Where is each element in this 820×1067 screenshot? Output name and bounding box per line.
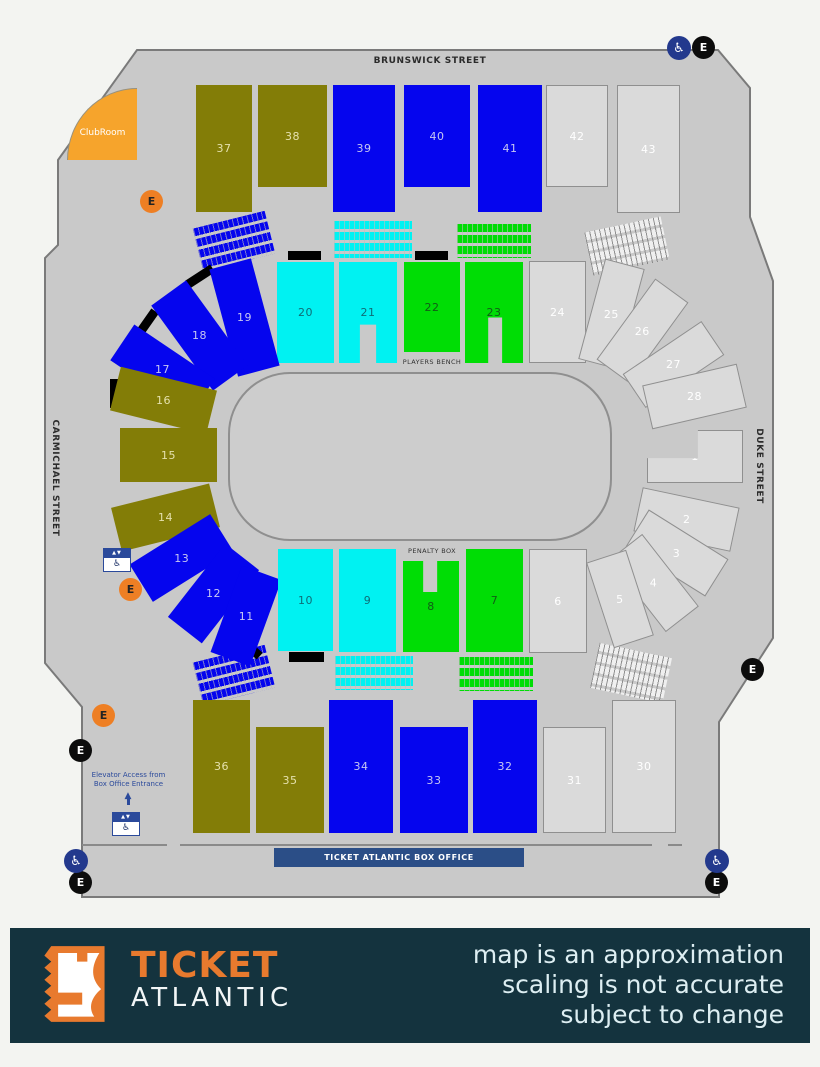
section-label: 9 — [364, 594, 372, 607]
section-label: 10 — [298, 594, 313, 607]
section-label: 13 — [174, 552, 189, 565]
section-label: 22 — [425, 301, 440, 314]
street-label-duke: DUKE STREET — [754, 428, 764, 504]
up-arrow-icon: ▲ — [120, 792, 136, 805]
walkway-line — [180, 844, 652, 846]
street-label-carmichael: CARMICHAEL STREET — [50, 419, 60, 536]
ticket-atlantic-logo-icon — [22, 944, 108, 1024]
section-label: 26 — [635, 325, 650, 338]
walkway-line — [82, 844, 167, 846]
section-label: 15 — [161, 449, 176, 462]
footer-banner: TICKET ATLANTIC map is an approximation … — [10, 928, 810, 1043]
section-label: 42 — [570, 130, 585, 143]
section-label: 27 — [666, 358, 681, 371]
exit-marker: E — [741, 658, 764, 681]
section-37[interactable]: 37 — [196, 85, 252, 212]
elevator-access-note: Elevator Access from Box Office Entrance — [66, 771, 191, 789]
section-label: 11 — [239, 610, 254, 623]
section-label: 3 — [673, 547, 681, 560]
bottom-center-right-rows[interactable] — [459, 657, 533, 691]
walkway-line — [668, 844, 682, 846]
box-office-bar: TICKET ATLANTIC BOX OFFICE — [274, 848, 524, 867]
bottom-center-left-rows[interactable] — [335, 656, 413, 690]
section-label: 12 — [206, 587, 221, 600]
section-9[interactable]: 9 — [339, 549, 396, 652]
section-31[interactable]: 31 — [543, 727, 606, 833]
section-15[interactable]: 15 — [120, 428, 217, 482]
exit-marker: E — [119, 578, 142, 601]
wall-bar — [415, 251, 448, 260]
section-label: 34 — [354, 760, 369, 773]
section-label: 20 — [298, 306, 313, 319]
ice-rink — [228, 372, 612, 541]
section-label: 40 — [430, 130, 445, 143]
wall-bar — [289, 652, 324, 662]
section-label: 28 — [687, 390, 702, 403]
section-label: 37 — [217, 142, 232, 155]
section-39[interactable]: 39 — [333, 85, 395, 212]
section-label: 32 — [498, 760, 513, 773]
section-33[interactable]: 33 — [400, 727, 468, 833]
section-label: 14 — [158, 511, 173, 524]
top-center-left-rows[interactable] — [334, 221, 412, 258]
section-label: 8 — [427, 600, 435, 613]
section-40[interactable]: 40 — [404, 85, 470, 187]
section-label: 41 — [503, 142, 518, 155]
section-label: 16 — [156, 394, 171, 407]
section-7[interactable]: 7 — [466, 549, 523, 652]
penalty-box-label: PENALTY BOX — [377, 547, 487, 555]
section-label: 19 — [237, 311, 252, 324]
top-center-right-rows[interactable] — [457, 224, 531, 258]
clubroom-label: ClubRoom — [80, 128, 126, 138]
section-label: 35 — [283, 774, 298, 787]
exit-marker: E — [692, 36, 715, 59]
section-label: 18 — [192, 329, 207, 342]
section-label: 39 — [357, 142, 372, 155]
section-label: 24 — [550, 306, 565, 319]
section-label: 4 — [650, 577, 658, 590]
section-label: 2 — [683, 513, 691, 526]
players-bench-label: PLAYERS BENCH — [377, 358, 487, 366]
section-label: 25 — [604, 308, 619, 321]
section-label: 6 — [554, 595, 562, 608]
exit-marker: E — [69, 739, 92, 762]
elevator-icon: ▲▼♿ — [112, 812, 140, 836]
wheelchair-access-icon: ♿ — [64, 849, 88, 873]
section-22[interactable]: 22 — [404, 262, 460, 352]
section-30[interactable]: 30 — [612, 700, 676, 833]
brand-name: TICKET ATLANTIC — [131, 948, 293, 1012]
wheelchair-access-icon: ♿ — [667, 36, 691, 60]
section-10[interactable]: 10 — [278, 549, 333, 651]
exit-marker: E — [69, 871, 92, 894]
arena-seating-map: ClubRoom 3738394041424320212223241918171… — [0, 0, 820, 1067]
street-label-brunswick: BRUNSWICK STREET — [330, 56, 530, 66]
section-38[interactable]: 38 — [258, 85, 327, 187]
exit-marker: E — [92, 704, 115, 727]
section-24[interactable]: 24 — [529, 261, 586, 363]
section-label: 17 — [155, 363, 170, 376]
section-label: 23 — [487, 306, 502, 319]
section-label: 43 — [641, 143, 656, 156]
wall-bar — [288, 251, 321, 260]
section-label: 33 — [427, 774, 442, 787]
section-label: 30 — [637, 760, 652, 773]
section-32[interactable]: 32 — [473, 700, 537, 833]
section-35[interactable]: 35 — [256, 727, 324, 833]
section-42[interactable]: 42 — [546, 85, 608, 187]
section-label: 31 — [567, 774, 582, 787]
section-43[interactable]: 43 — [617, 85, 680, 213]
section-6[interactable]: 6 — [529, 549, 587, 653]
section-label: 36 — [214, 760, 229, 773]
section-label: 5 — [616, 593, 624, 606]
section-34[interactable]: 34 — [329, 700, 393, 833]
section-label: 7 — [491, 594, 499, 607]
exit-marker: E — [140, 190, 163, 213]
section-41[interactable]: 41 — [478, 85, 542, 212]
section-20[interactable]: 20 — [277, 262, 334, 363]
map-disclaimer: map is an approximation scaling is not a… — [473, 940, 784, 1030]
section-label: 21 — [361, 306, 376, 319]
wheelchair-access-icon: ♿ — [705, 849, 729, 873]
section-36[interactable]: 36 — [193, 700, 250, 833]
elevator-icon: ▲▼♿ — [103, 548, 131, 572]
exit-marker: E — [705, 871, 728, 894]
section-label: 38 — [285, 130, 300, 143]
